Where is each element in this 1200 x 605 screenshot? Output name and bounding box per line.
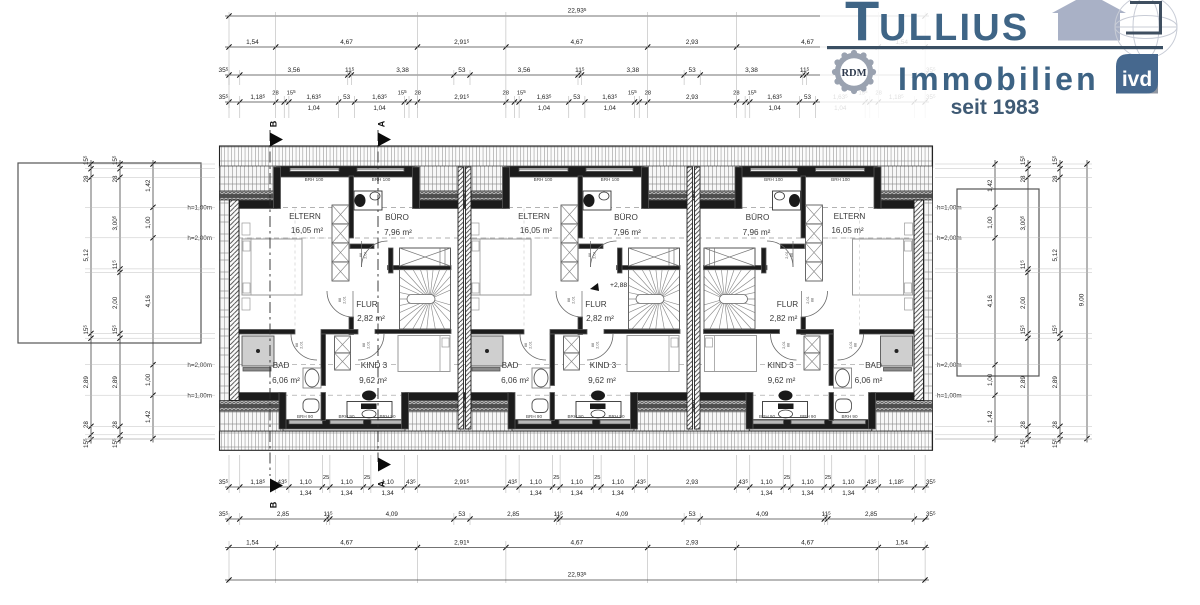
svg-text:h=1,00m: h=1,00m <box>187 205 212 212</box>
svg-text:1,10: 1,10 <box>842 479 855 486</box>
svg-text:2,93: 2,93 <box>686 479 699 486</box>
svg-text:ELTERN: ELTERN <box>518 212 550 221</box>
svg-text:1,00: 1,00 <box>145 373 152 386</box>
svg-text:28: 28 <box>112 421 119 429</box>
svg-text:2,93: 2,93 <box>686 39 699 46</box>
svg-text:16,05 m²: 16,05 m² <box>831 226 864 235</box>
svg-text:BAD: BAD <box>865 361 882 370</box>
svg-text:BRH 100: BRH 100 <box>764 177 783 182</box>
svg-text:2,01: 2,01 <box>300 341 304 348</box>
svg-text:3,56: 3,56 <box>518 67 531 74</box>
svg-text:ivd: ivd <box>1122 68 1152 91</box>
svg-text:1,34: 1,34 <box>381 490 394 497</box>
svg-text:2,93: 2,93 <box>686 94 699 101</box>
svg-text:2,01: 2,01 <box>593 251 597 258</box>
svg-text:28: 28 <box>1052 175 1059 183</box>
svg-text:1,10: 1,10 <box>299 479 312 486</box>
svg-text:h=1,00m: h=1,00m <box>937 392 962 399</box>
svg-text:B: B <box>269 501 279 508</box>
svg-text:9,00: 9,00 <box>1079 293 1086 306</box>
svg-text:2,89: 2,89 <box>1052 376 1059 389</box>
svg-text:2,89: 2,89 <box>1020 376 1027 389</box>
svg-text:2,82 m²: 2,82 m² <box>357 314 385 323</box>
svg-text:88: 88 <box>588 253 592 257</box>
svg-text:53: 53 <box>804 94 812 101</box>
svg-text:A: A <box>377 480 387 487</box>
svg-text:1,10: 1,10 <box>612 479 625 486</box>
svg-text:88: 88 <box>362 343 366 347</box>
svg-text:4,09: 4,09 <box>616 511 629 518</box>
svg-text:BRH 90: BRH 90 <box>526 414 543 419</box>
svg-text:1,34: 1,34 <box>612 490 625 497</box>
svg-text:88: 88 <box>790 253 794 257</box>
svg-text:2,85: 2,85 <box>507 511 520 518</box>
svg-text:2,01: 2,01 <box>572 296 576 303</box>
svg-text:ELTERN: ELTERN <box>834 212 866 221</box>
svg-text:BAD: BAD <box>273 361 290 370</box>
svg-text:ELTERN: ELTERN <box>289 212 321 221</box>
svg-text:88: 88 <box>591 343 595 347</box>
svg-text:BRH 90: BRH 90 <box>379 414 396 419</box>
svg-text:1,42: 1,42 <box>145 179 152 192</box>
svg-text:4,67: 4,67 <box>801 39 814 46</box>
svg-text:7,96 m²: 7,96 m² <box>613 228 641 237</box>
svg-text:BRH 90: BRH 90 <box>567 414 584 419</box>
svg-text:BRH 90: BRH 90 <box>841 414 858 419</box>
svg-text:1,42: 1,42 <box>987 410 994 423</box>
svg-text:2,01: 2,01 <box>849 341 853 348</box>
svg-text:seit 1983: seit 1983 <box>951 96 1040 119</box>
svg-text:2,01: 2,01 <box>529 341 533 348</box>
svg-text:5,12: 5,12 <box>83 249 90 262</box>
svg-text:1,10: 1,10 <box>340 479 353 486</box>
svg-text:2,01: 2,01 <box>596 341 600 348</box>
svg-text:4,16: 4,16 <box>145 295 152 308</box>
svg-text:2,01: 2,01 <box>782 341 786 348</box>
svg-text:2,89: 2,89 <box>112 376 119 389</box>
svg-text:9,62 m²: 9,62 m² <box>588 376 616 385</box>
svg-text:6,06 m²: 6,06 m² <box>501 376 529 385</box>
svg-text:A: A <box>377 120 387 127</box>
svg-text:BRH 90: BRH 90 <box>608 414 625 419</box>
svg-text:7,96 m²: 7,96 m² <box>743 228 771 237</box>
svg-text:1,04: 1,04 <box>308 105 321 112</box>
svg-text:88: 88 <box>854 343 858 347</box>
svg-text:1,42: 1,42 <box>987 179 994 192</box>
svg-text:1,54: 1,54 <box>246 39 259 46</box>
svg-text:1,34: 1,34 <box>530 490 543 497</box>
svg-text:2,01: 2,01 <box>367 341 371 348</box>
svg-text:2,82 m²: 2,82 m² <box>770 314 798 323</box>
svg-text:RDM: RDM <box>841 68 866 79</box>
svg-text:88: 88 <box>787 343 791 347</box>
svg-text:BRH 100: BRH 100 <box>534 177 553 182</box>
svg-text:1,10: 1,10 <box>760 479 773 486</box>
svg-text:FLUR: FLUR <box>585 300 606 309</box>
svg-text:BRH 90: BRH 90 <box>759 414 776 419</box>
svg-text:25: 25 <box>364 475 370 481</box>
svg-text:88: 88 <box>567 298 571 302</box>
svg-text:BRH 100: BRH 100 <box>372 177 391 182</box>
svg-text:25: 25 <box>553 475 559 481</box>
svg-text:4,67: 4,67 <box>801 540 814 547</box>
svg-text:6,06 m²: 6,06 m² <box>855 376 883 385</box>
svg-text:53: 53 <box>689 511 697 518</box>
svg-text:4,09: 4,09 <box>756 511 769 518</box>
svg-text:BRH 100: BRH 100 <box>601 177 620 182</box>
svg-text:1,00: 1,00 <box>145 216 152 229</box>
svg-text:4,67: 4,67 <box>340 39 353 46</box>
svg-text:BRH 90: BRH 90 <box>800 414 817 419</box>
svg-text:9,62 m²: 9,62 m² <box>359 376 387 385</box>
svg-text:2,89: 2,89 <box>83 376 90 389</box>
svg-text:25: 25 <box>594 475 600 481</box>
svg-text:25: 25 <box>323 475 329 481</box>
svg-text:4,16: 4,16 <box>987 295 994 308</box>
svg-text:28: 28 <box>112 175 119 183</box>
svg-text:1,34: 1,34 <box>340 490 353 497</box>
svg-text:BAD: BAD <box>502 361 519 370</box>
svg-text:2,01: 2,01 <box>785 251 789 258</box>
svg-text:88: 88 <box>359 253 363 257</box>
svg-text:28: 28 <box>1020 421 1027 429</box>
svg-text:6,06 m²: 6,06 m² <box>272 376 300 385</box>
svg-text:KIND 3: KIND 3 <box>767 361 794 370</box>
svg-text:9,62 m²: 9,62 m² <box>768 376 796 385</box>
svg-text:16,05 m²: 16,05 m² <box>291 226 324 235</box>
svg-text:KIND 3: KIND 3 <box>590 361 617 370</box>
svg-text:1,34: 1,34 <box>571 490 584 497</box>
svg-text:1,42: 1,42 <box>145 410 152 423</box>
svg-text:2,00: 2,00 <box>1020 296 1027 309</box>
svg-text:4,67: 4,67 <box>340 540 353 547</box>
svg-text:2,85: 2,85 <box>865 511 878 518</box>
svg-text:Immobilien: Immobilien <box>898 61 1099 97</box>
svg-text:28: 28 <box>1020 175 1027 183</box>
svg-text:4,67: 4,67 <box>570 39 583 46</box>
svg-text:BRH 90: BRH 90 <box>297 414 314 419</box>
svg-text:1,00: 1,00 <box>987 373 994 386</box>
svg-text:BÜRO: BÜRO <box>385 212 409 222</box>
svg-text:BÜRO: BÜRO <box>746 212 770 222</box>
svg-text:1,10: 1,10 <box>571 479 584 486</box>
svg-text:53: 53 <box>573 94 581 101</box>
svg-text:FLUR: FLUR <box>777 300 798 309</box>
svg-text:5,12: 5,12 <box>1052 249 1059 262</box>
svg-text:ULLIUS: ULLIUS <box>879 7 1029 49</box>
svg-text:3,38: 3,38 <box>745 67 758 74</box>
svg-text:2,01: 2,01 <box>806 296 810 303</box>
svg-text:3,56: 3,56 <box>287 67 300 74</box>
svg-text:88: 88 <box>338 298 342 302</box>
svg-text:h=2,00m: h=2,00m <box>187 362 212 369</box>
svg-text:+2,88: +2,88 <box>610 282 627 289</box>
svg-text:1,34: 1,34 <box>842 490 855 497</box>
svg-text:88: 88 <box>524 343 528 347</box>
svg-text:25: 25 <box>825 475 831 481</box>
svg-text:h=2,00m: h=2,00m <box>937 235 962 242</box>
svg-text:1,34: 1,34 <box>299 490 312 497</box>
svg-text:1,54: 1,54 <box>895 540 908 547</box>
svg-text:BRH 100: BRH 100 <box>831 177 850 182</box>
svg-text:28: 28 <box>1052 421 1059 429</box>
svg-text:53: 53 <box>688 67 696 74</box>
svg-text:1,04: 1,04 <box>768 105 781 112</box>
svg-text:53: 53 <box>458 67 466 74</box>
svg-text:2,00: 2,00 <box>112 296 119 309</box>
svg-text:FLUR: FLUR <box>356 300 377 309</box>
svg-text:h=1,00m: h=1,00m <box>937 205 962 212</box>
svg-text:88: 88 <box>811 298 815 302</box>
svg-text:B: B <box>269 120 279 127</box>
svg-text:2,01: 2,01 <box>343 296 347 303</box>
svg-text:BÜRO: BÜRO <box>614 212 638 222</box>
svg-text:1,04: 1,04 <box>538 105 551 112</box>
svg-text:2,01: 2,01 <box>364 251 368 258</box>
svg-text:1,04: 1,04 <box>604 105 617 112</box>
svg-text:2,82 m²: 2,82 m² <box>586 314 614 323</box>
svg-text:16,05 m²: 16,05 m² <box>520 226 553 235</box>
svg-text:1,04: 1,04 <box>373 105 386 112</box>
svg-text:1,10: 1,10 <box>801 479 814 486</box>
svg-text:28: 28 <box>83 175 90 183</box>
svg-text:2,85: 2,85 <box>277 511 290 518</box>
svg-text:25: 25 <box>784 475 790 481</box>
svg-text:7,96 m²: 7,96 m² <box>384 228 412 237</box>
svg-text:1,10: 1,10 <box>530 479 543 486</box>
svg-text:1,34: 1,34 <box>801 490 814 497</box>
svg-text:4,09: 4,09 <box>386 511 399 518</box>
svg-text:53: 53 <box>458 511 466 518</box>
svg-text:h=2,00m: h=2,00m <box>937 362 962 369</box>
svg-text:53: 53 <box>343 94 351 101</box>
svg-text:4,67: 4,67 <box>570 540 583 547</box>
svg-text:h=1,00m: h=1,00m <box>187 392 212 399</box>
svg-text:3,38: 3,38 <box>396 67 409 74</box>
svg-text:BRH 100: BRH 100 <box>305 177 324 182</box>
svg-text:BRH 90: BRH 90 <box>338 414 355 419</box>
svg-text:1,34: 1,34 <box>760 490 773 497</box>
svg-text:3,38: 3,38 <box>626 67 639 74</box>
svg-text:28: 28 <box>83 421 90 429</box>
svg-text:h=2,00m: h=2,00m <box>187 235 212 242</box>
svg-text:T: T <box>845 0 879 52</box>
svg-text:KIND 3: KIND 3 <box>361 361 388 370</box>
svg-text:1,54: 1,54 <box>246 540 259 547</box>
svg-text:1,00: 1,00 <box>987 216 994 229</box>
svg-text:88: 88 <box>295 343 299 347</box>
svg-text:2,93: 2,93 <box>686 540 699 547</box>
